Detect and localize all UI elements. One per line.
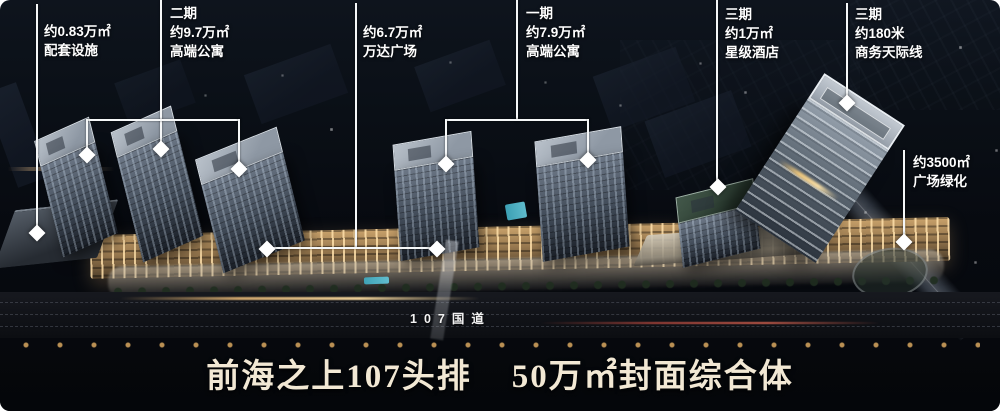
annotation-text-line: 约3500㎡ <box>913 153 970 172</box>
annotation-text-line: 三期 <box>725 5 779 24</box>
annotation-text-line: 二期 <box>170 4 229 23</box>
leader-line-2-main <box>160 0 162 146</box>
lit-floor-glow <box>778 159 839 201</box>
annotation-text-line: 约9.7万㎡ <box>170 23 229 42</box>
leader-line-2-drop-right <box>238 119 240 165</box>
national-road-107 <box>0 292 1000 338</box>
annotation-text-line: 约0.83万㎡ <box>44 22 111 41</box>
annotation-phase3-hotel: 三期 约1万㎡ 星级酒店 <box>725 5 779 62</box>
annotation-text-line: 约6.7万㎡ <box>363 23 422 42</box>
leader-line-4-bracket <box>445 119 589 121</box>
annotation-phase2-apartments: 二期 约9.7万㎡ 高端公寓 <box>170 4 229 61</box>
city-light-specks <box>0 0 1 1</box>
plaza-pool <box>364 277 389 285</box>
annotation-text-line: 商务天际线 <box>855 43 923 62</box>
headline-part2: 50万㎡封面综合体 <box>512 359 794 395</box>
annotation-supporting-facilities: 约0.83万㎡ 配套设施 <box>44 22 111 60</box>
aerial-render-scene: 约0.83万㎡ 配套设施 二期 约9.7万㎡ 高端公寓 约6.7万㎡ 万达广场 … <box>0 0 1000 411</box>
annotation-text-line: 高端公寓 <box>170 42 229 61</box>
annotation-text-line: 星级酒店 <box>725 43 779 62</box>
leader-line-2-bracket <box>86 119 240 121</box>
annotation-text-line: 一期 <box>526 4 585 23</box>
annotation-wanda-plaza: 约6.7万㎡ 万达广场 <box>363 23 422 61</box>
tower-facade <box>536 152 629 262</box>
marketing-headline: 前海之上107头排50万㎡封面综合体 <box>0 349 1000 397</box>
leader-line-4-main <box>516 0 518 121</box>
headlight-streak <box>120 297 480 300</box>
leader-line-6 <box>846 3 848 99</box>
annotation-plaza-greenery: 约3500㎡ 广场绿化 <box>913 153 970 191</box>
annotation-text-line: 三期 <box>855 5 923 24</box>
lane-line <box>0 326 1000 327</box>
annotation-text-line: 高端公寓 <box>526 42 585 61</box>
annotation-text-line: 配套设施 <box>44 41 111 60</box>
leader-line-3-main <box>355 3 357 248</box>
annotation-text-line: 约7.9万㎡ <box>526 23 585 42</box>
leader-line-7 <box>903 150 905 238</box>
annotation-text-line: 约180米 <box>855 24 923 43</box>
background-building <box>414 40 506 112</box>
headline-part1: 前海之上107头排 <box>206 359 472 395</box>
annotation-phase3-skyline: 三期 约180米 商务天际线 <box>855 5 923 62</box>
annotation-text-line: 广场绿化 <box>913 172 970 191</box>
leader-line-5 <box>716 0 718 183</box>
annotation-text-line: 万达广场 <box>363 42 422 61</box>
lane-line <box>0 302 1000 303</box>
background-building <box>244 44 348 124</box>
annotation-phase1-apartments: 一期 约7.9万㎡ 高端公寓 <box>526 4 585 61</box>
lane-line <box>0 314 1000 315</box>
road-name-label: 107国道 <box>410 308 491 327</box>
phase1-tower-b <box>534 126 629 262</box>
leader-line-4-drop-left <box>445 119 447 160</box>
leader-line-3-bracket <box>266 247 438 249</box>
taillight-streak <box>540 322 880 324</box>
leader-line-1 <box>36 4 38 228</box>
annotation-text-line: 约1万㎡ <box>725 24 779 43</box>
courtyard-pool <box>505 201 527 220</box>
